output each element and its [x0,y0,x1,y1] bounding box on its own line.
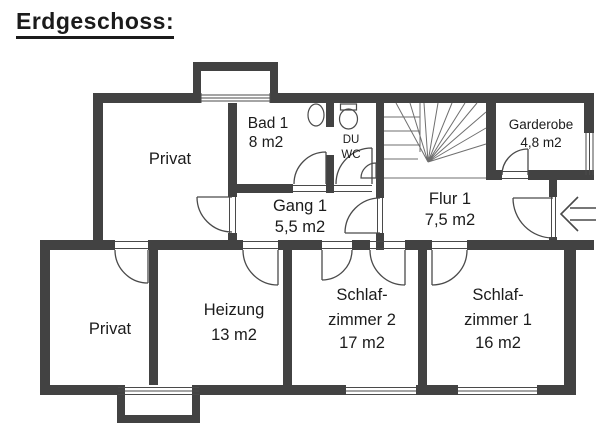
room-label-schlafzimmer1-line1: Schlaf- [472,286,523,304]
room-area-schlafzimmer1: 16 m2 [475,334,521,352]
wall-segment [326,103,334,127]
wall-segment [549,180,557,197]
room-label-flur1: Flur 1 [429,190,471,208]
wall-segment [418,250,427,385]
door-schlafzimmer2-a [322,250,352,280]
room-area-gang1: 5,5 m2 [275,218,325,236]
room-label-heizung: Heizung [204,301,265,319]
wall-segment [376,103,384,198]
wall-segment [117,415,200,423]
wall-segment [93,93,193,103]
room-area-garderobe: 4,8 m2 [520,135,561,150]
door-privat-upper [197,197,232,232]
wall-segment [228,233,237,240]
wall-segment [416,385,458,395]
wall-segment [228,103,237,197]
sink-icon [308,104,324,126]
wall-segment [270,93,594,103]
room-area-bad1: 8 m2 [249,134,283,151]
floorplan-drawing: Privat Bad 1 8 m2 DU WC Garderobe 4,8 m2… [0,0,612,440]
window-schlafzimmer2 [346,388,416,395]
room-label-bad1: Bad 1 [248,115,289,132]
wall-segment [193,62,278,71]
room-label-schlafzimmer2-line2: zimmer 2 [328,311,396,329]
door-heizung [243,250,278,285]
room-labels: Privat Bad 1 8 m2 DU WC Garderobe 4,8 m2… [89,115,573,352]
door-privat-lower [115,250,148,283]
bay-window-top [201,93,270,103]
entrance-arrow-icon [561,197,596,231]
wall-segment [528,170,594,180]
wall-segment [40,240,115,250]
room-label-duwc-line1: DU [343,134,360,146]
room-area-schlafzimmer2: 17 m2 [339,334,385,352]
door-schlafzimmer2-b [370,250,405,285]
wall-segment [537,385,576,395]
floorplan-page: Erdgeschoss: [0,0,612,440]
wall-segment [278,240,322,250]
room-label-schlafzimmer1-line2: zimmer 1 [464,311,532,329]
wall-segment [93,93,103,250]
wall-segment [40,385,117,395]
door-bad1 [294,152,326,184]
wall-segment [405,240,432,250]
window-garderobe-right [586,133,593,175]
wall-segment [326,155,334,193]
wall-segment [564,240,576,395]
wall-segment [40,240,50,395]
room-label-garderobe: Garderobe [509,117,574,132]
room-label-privat-upper: Privat [149,150,192,168]
staircase [384,103,486,178]
wall-segment [283,250,292,385]
door-gang-flur [345,198,380,233]
room-label-duwc-line2: WC [341,149,360,161]
room-label-schlafzimmer2-line1: Schlaf- [336,286,387,304]
wall-segment [352,240,370,250]
window-schlafzimmer1 [458,388,537,395]
wall-segment [149,250,158,385]
wall-segment [148,240,243,250]
corner-sink-icon [361,163,376,178]
wall-segment [584,93,594,133]
bay-window-bottom [118,388,199,395]
wall-segment [237,184,293,193]
room-label-privat-lower: Privat [89,320,132,338]
door-entrance [513,198,553,238]
wall-segment [486,103,496,180]
door-schlafzimmer1 [432,250,467,285]
room-label-gang1: Gang 1 [273,197,327,215]
wall-segment [200,385,346,395]
toilet-icon [340,109,358,129]
room-area-flur1: 7,5 m2 [425,211,475,229]
room-area-heizung: 13 m2 [211,326,257,344]
door-thresholds [115,172,556,249]
